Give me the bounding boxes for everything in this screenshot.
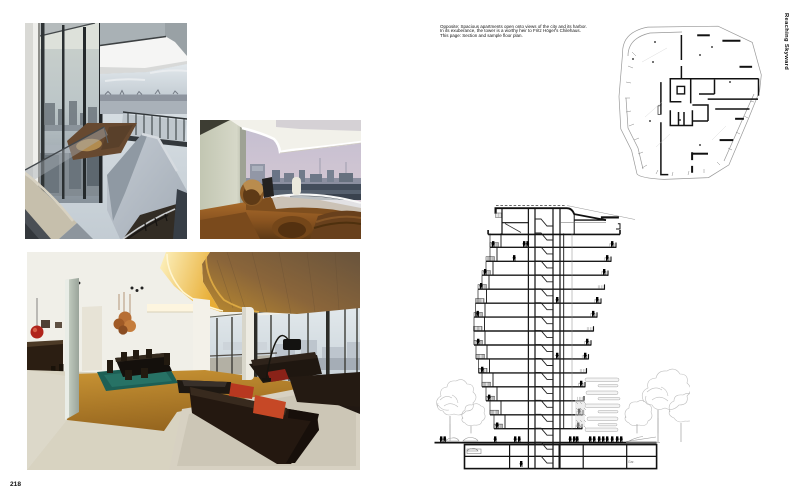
svg-text:Gar.: Gar. [628, 460, 635, 464]
